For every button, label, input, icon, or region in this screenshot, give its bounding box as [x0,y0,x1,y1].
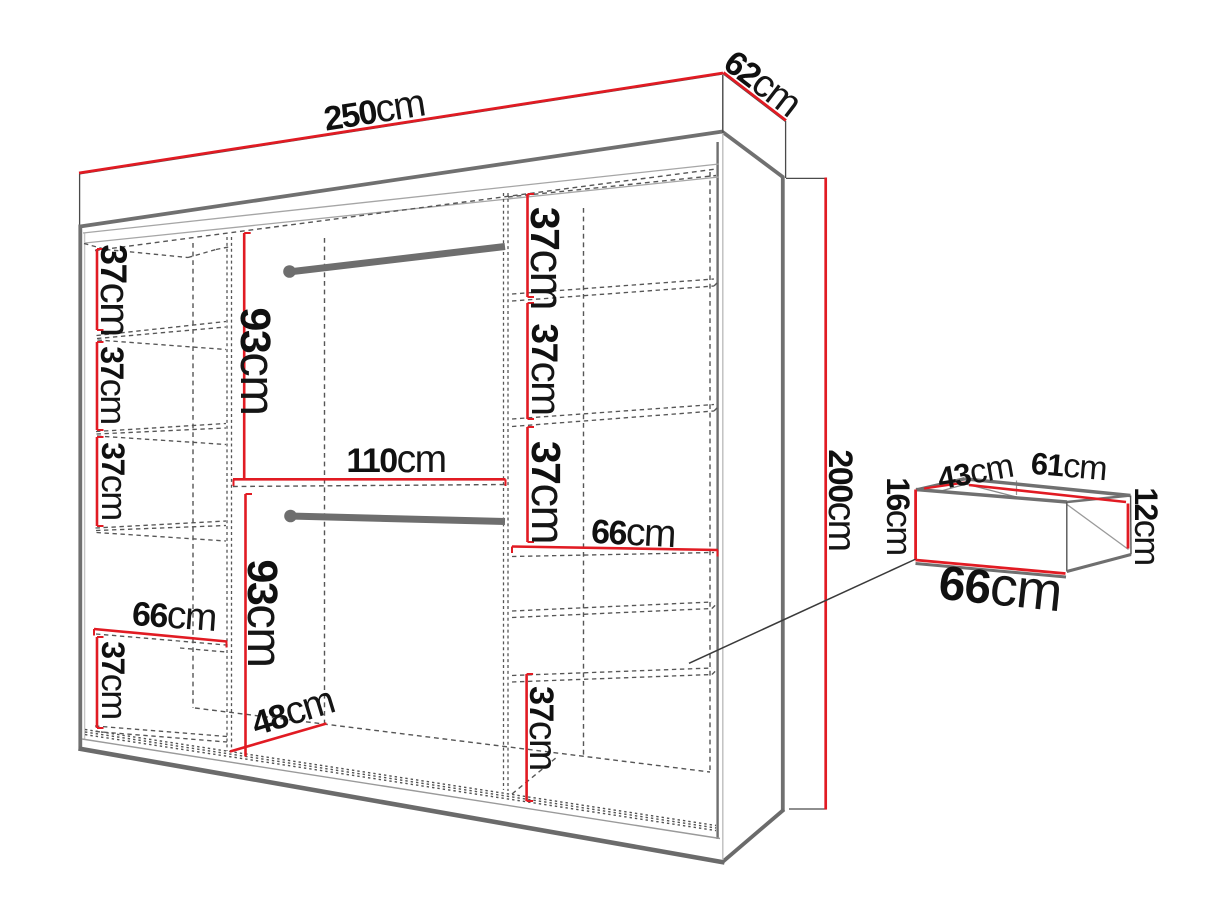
svg-text:37cm: 37cm [92,244,139,335]
svg-text:37cm: 37cm [521,686,564,770]
svg-text:37cm: 37cm [521,207,574,309]
svg-text:16cm: 16cm [879,477,920,555]
svg-text:37cm: 37cm [523,323,570,414]
svg-text:66cm: 66cm [131,591,218,640]
svg-text:110cm: 110cm [346,438,445,481]
svg-text:61cm: 61cm [1029,444,1108,488]
svg-text:37cm: 37cm [93,346,134,424]
svg-text:93cm: 93cm [230,307,284,414]
svg-text:37cm: 37cm [94,442,135,520]
svg-text:200cm: 200cm [820,449,863,550]
svg-text:66cm: 66cm [590,509,676,556]
svg-text:93cm: 93cm [237,559,291,666]
svg-text:37cm: 37cm [94,641,135,719]
svg-text:37cm: 37cm [522,441,575,543]
svg-text:12cm: 12cm [1127,487,1168,565]
